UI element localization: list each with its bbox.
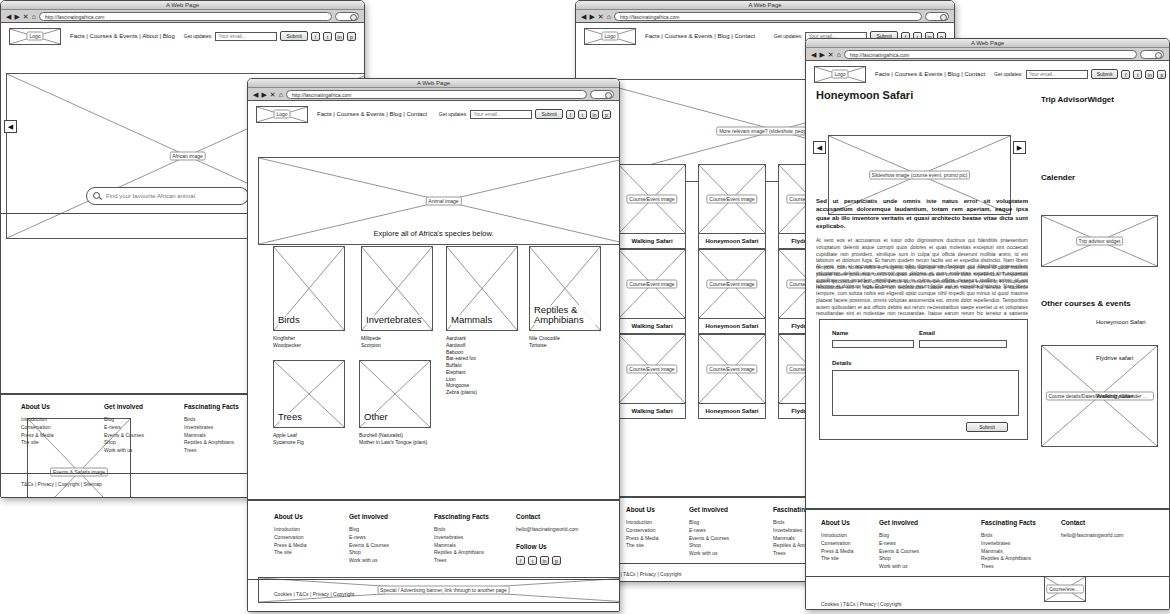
list-item[interactable]: Shop [689,542,767,550]
twitter-icon[interactable]: t [1133,70,1142,79]
footer-divider [248,499,619,501]
footer-involved-column: Get involved BlogE-newsEvents & CoursesS… [349,513,427,565]
footer-column-title: Get involved [689,506,767,513]
home-icon[interactable]: ⌂ [607,13,611,20]
species-card-invertebrates[interactable]: Invertebrates MillipedeScorpion [361,246,433,349]
list-item[interactable]: Blog [104,416,182,424]
species-example-list: Apple LeafSycamore Fig [273,432,345,446]
ad-banner[interactable]: Special / Advertising banner, link throu… [258,577,619,603]
forward-icon[interactable]: ▶ [819,51,824,58]
browser-toolbar: ◀ ▶ ✕ ⌂ http://fascinatingafrica.com [806,48,1169,61]
footer-column-title: Fascinating Facts [981,519,1059,526]
events-image-label: Events & Safaris image [50,468,108,477]
species-card-label: Trees [278,412,302,422]
site-logo[interactable]: Logo [814,66,866,83]
list-item[interactable]: Mammals [981,548,1059,556]
other-course-link[interactable]: Walking safari [1096,393,1133,399]
slideshow-image-label: Slideshow image (course event, promo pic… [869,171,971,180]
footer-about-column: About Us IntroductionConservationPress &… [21,403,99,447]
footer-involved-column: Get involved BlogE-newsEvents & CoursesS… [104,403,182,455]
facebook-icon[interactable]: f [311,32,320,41]
course-body-paragraph: At vero eos et accusamus et iusto odio d… [816,263,1028,315]
twitter-icon[interactable]: t [578,110,587,119]
list-item[interactable]: Woodpecker [273,342,345,349]
linkedin-icon[interactable]: in [335,32,344,41]
legal-divider [806,576,1169,577]
url-bar[interactable]: http://fascinatingafrica.com [286,90,587,99]
species-example-list: Nile CrocodileTortoise [529,335,601,349]
species-card-label: Other [364,412,388,422]
footer-contact-column: Contact hello@fascinatingworld.com Follo… [516,513,611,565]
species-example-list: MillipedeScorpion [361,335,433,349]
site-header: Logo Facts | Courses & Events | Blog | C… [806,61,1169,87]
back-icon[interactable]: ◀ [253,91,258,98]
course-card-honeymoon[interactable]: Course/Event image Honeymoon Safari [698,334,766,419]
contact-email[interactable]: hello@fascinatingworld.com [1061,532,1161,540]
list-item[interactable]: Introduction [274,526,352,534]
main-nav[interactable]: Facts | Courses & Events | About | Blog [70,33,175,39]
home-icon[interactable]: ⌂ [279,91,283,98]
pinterest-icon[interactable]: p [347,32,356,41]
footer-column-title: Fascinating Facts [434,513,512,520]
url-bar[interactable]: http://fascinatingafrica.com [844,50,1137,59]
list-item[interactable]: E-news [349,534,427,542]
linkedin-icon[interactable]: in [590,110,599,119]
footer-column-title: About Us [274,513,352,520]
course-card-title: Walking Safari [618,318,686,334]
newsletter-signup: Get updates: Submit f t in p [994,69,1166,79]
list-item[interactable]: E-news [104,424,182,432]
footer-link-list: BirdsInvertebratesMammalsReptiles & Amph… [434,526,512,565]
logo-label: Logo [831,70,848,79]
tripadvisor-heading: Trip AdvisorWidget [1041,95,1114,104]
back-icon[interactable]: ◀ [811,51,816,58]
home-icon[interactable]: ⌂ [32,13,36,20]
legal-links[interactable]: Cookies | T&Cs | Privacy | Copyright [821,601,902,607]
name-field[interactable] [832,340,914,348]
facebook-icon[interactable]: f [516,556,525,565]
list-item[interactable]: Aardwolf [446,342,518,349]
footer-column-title: Contact [516,513,611,520]
species-card-other[interactable]: Other Burchell (Naturalist)Mother in Law… [359,360,431,446]
list-item[interactable]: Mother in Law's Tongue (plant) [359,439,431,446]
list-item[interactable]: Shop [349,549,427,557]
forward-icon[interactable]: ▶ [589,13,594,20]
get-updates-label: Get updates: [184,33,213,39]
main-nav[interactable]: Facts | Courses & Events | Blog | Contac… [875,71,985,77]
list-item[interactable]: Trees [981,563,1059,571]
footer-link-list: BlogE-newsEvents & CoursesShopWork with … [879,532,957,571]
species-card-mammals[interactable]: Mammals AardvarkAardwolfBaboonBat-eared … [446,246,518,396]
course-card-title: Honeymoon Safari [698,403,766,419]
course-image-label: Course/Event image [626,280,677,289]
name-field-label: Name [832,330,848,336]
list-item[interactable]: Reptiles & Amphibians [981,555,1059,563]
legal-divider [248,579,619,580]
list-item[interactable]: Conservation [274,534,352,542]
list-item[interactable]: Events & Courses [689,535,767,543]
list-item[interactable]: Blog [879,532,957,540]
linkedin-icon[interactable]: in [540,556,549,565]
back-icon[interactable]: ◀ [581,13,586,20]
tripadvisor-widget-placeholder: Trip advisor widget [1041,215,1158,267]
list-item[interactable]: The site [274,549,352,557]
browser-search-icon[interactable] [590,90,614,99]
list-item[interactable]: Kingfisher [273,335,345,342]
list-item[interactable]: Events & Courses [349,542,427,550]
course-card-title: Walking Safari [618,403,686,419]
ad-banner-label: Special / Advertising banner, link throu… [377,586,510,595]
email-signup-input[interactable] [1026,70,1088,79]
species-card-label: Mammals [451,315,492,325]
twitter-icon[interactable]: t [528,556,537,565]
email-signup-input[interactable] [215,32,277,41]
page-content: Logo Facts | Courses & Events | Blog | C… [806,61,1169,609]
window-titlebar[interactable]: A Web Page [806,39,1169,48]
browser-toolbar: ◀ ▶ ✕ ⌂ http://fascinatingafrica.com [248,88,619,101]
list-item[interactable]: Press & Media [21,432,99,440]
course-card-walking[interactable]: Course/Event image Walking Safari [618,249,686,334]
window-titlebar[interactable]: A Web Page [576,1,954,10]
site-logo[interactable]: Logo [9,28,61,45]
list-item[interactable]: Apple Leaf [273,432,345,439]
close-icon[interactable]: ✕ [828,51,834,58]
footer-column-title: Contact [1061,519,1161,526]
url-bar[interactable]: http://fascinatingafrica.com [39,12,332,21]
course-card-title: Honeymoon Safari [698,233,766,249]
newsletter-signup: Get updates: Submit f t in p [184,31,356,41]
follow-us-label: Follow Us [516,543,611,550]
other-course-thumb[interactable]: Course/event image [1044,576,1086,602]
tripadvisor-widget-label: Trip advisor widget [1076,237,1124,246]
animal-search-input[interactable] [106,193,242,199]
legal-links[interactable]: Cookies | T&Cs | Privacy | Copyright [274,591,355,597]
list-item[interactable]: Elephant [446,369,518,376]
slideshow-next-button[interactable]: ▶ [1013,141,1026,154]
browser-search-icon[interactable] [335,12,359,21]
newsletter-signup: Get updates: Submit f t in p [439,109,611,119]
list-item[interactable]: Invertebrates [981,540,1059,548]
contact-email[interactable]: hello@fascinatingworld.com [516,526,611,534]
email-signup-input[interactable] [470,110,532,119]
list-item[interactable]: E-news [879,540,957,548]
site-header: Logo Facts | Courses & Events | About | … [1,23,364,49]
course-card-walking[interactable]: Course/Event image Walking Safari [618,334,686,419]
list-item[interactable]: Introduction [21,416,99,424]
list-item[interactable]: Blog [689,519,767,527]
close-icon[interactable]: ✕ [23,13,29,20]
species-heading: Explore all of Africa's species below. [248,229,619,238]
footer-involved-column: Get involved BlogE-newsEvents & CoursesS… [689,506,767,558]
pinterest-icon[interactable]: p [1157,70,1166,79]
twitter-icon[interactable]: t [323,32,332,41]
list-item[interactable]: Nile Crocodile [529,335,601,342]
email-field-label: Email [919,330,935,336]
footer-column-title: About Us [21,403,99,410]
course-image-label: Course/Event image [626,365,677,374]
home-icon[interactable]: ⌂ [837,51,841,58]
list-item[interactable]: Sycamore Fig [273,439,345,446]
site-logo[interactable]: Logo [256,106,308,123]
window-titlebar[interactable]: A Web Page [1,1,364,10]
get-updates-label: Get updates: [994,71,1023,77]
footer-facts-column: Fascinating Facts BirdsInvertebratesMamm… [434,513,512,565]
main-nav[interactable]: Facts | Courses & Events | Blog | Contac… [645,33,755,39]
calendar-heading: Calender [1041,173,1075,182]
logo-label: Logo [273,110,290,119]
list-item[interactable]: The site [21,439,99,447]
other-course-link[interactable]: Flydrive safari [1096,355,1133,361]
footer-involved-column: Get involved BlogE-newsEvents & CoursesS… [879,519,957,571]
list-item[interactable]: Work with us [879,563,957,571]
list-item[interactable]: Scorpion [361,342,433,349]
search-icon [93,192,101,200]
species-card-birds[interactable]: Birds KingfisherWoodpecker [273,246,345,349]
list-item[interactable]: Zebra (plains) [446,389,518,396]
browser-window-course-detail: A Web Page ◀ ▶ ✕ ⌂ http://fascinatingafr… [805,38,1170,610]
hero-image-label: Animal image [425,197,461,206]
course-card-walking[interactable]: Course/Event image Walking Safari [618,164,686,249]
window-titlebar[interactable]: A Web Page [248,79,619,88]
list-item[interactable]: Shop [879,555,957,563]
list-item[interactable]: Buffalo [446,362,518,369]
details-field[interactable] [832,370,1019,416]
list-item[interactable]: Work with us [104,447,182,455]
list-item[interactable]: Lion [446,376,518,383]
species-card-label: Reptiles & Amphibians [534,305,600,325]
other-course-link[interactable]: Honeymoon Safari [1096,319,1146,325]
list-item[interactable]: Press & Media [274,542,352,550]
get-updates-label: Get updates: [774,33,803,39]
site-logo[interactable]: Logo [584,28,636,45]
footer-divider [806,508,1169,510]
footer-column-title: Get involved [104,403,182,410]
list-item[interactable]: Trees [434,557,512,565]
course-image-label: Course/Event image [706,195,757,204]
logo-label: Logo [601,32,618,41]
footer-link-list: BlogE-newsEvents & CoursesShopWork with … [689,519,767,558]
form-submit-button[interactable]: Submit [966,422,1008,432]
email-field[interactable] [919,340,1007,348]
submit-button[interactable]: Submit [280,31,308,41]
submit-button[interactable]: Submit [535,109,563,119]
course-intro-text: Sed ut perspiciatis unde omnis iste natu… [816,197,1028,231]
species-card-reptiles[interactable]: Reptiles & Amphibians Nile CrocodileTort… [529,246,601,349]
list-item[interactable]: Events & Courses [104,432,182,440]
url-bar[interactable]: http://fascinatingafrica.com [614,12,922,21]
list-item[interactable]: Millipede [361,335,433,342]
footer-contact-column: Contact hello@fascinatingworld.com [1061,519,1161,540]
species-card-label: Invertebrates [366,315,421,325]
list-item[interactable]: Tortoise [529,342,601,349]
legal-links[interactable]: T&Cs | Privacy | Copyright | Sitemap [21,481,102,487]
browser-search-icon[interactable] [925,12,949,21]
footer-column-title: Get involved [349,513,427,520]
species-example-list: KingfisherWoodpecker [273,335,345,349]
list-item[interactable]: Birds [434,526,512,534]
submit-button[interactable]: Submit [1091,69,1119,79]
get-updates-label: Get updates: [439,111,468,117]
course-image-label: Course/Event image [706,280,757,289]
list-item[interactable]: Conservation [21,424,99,432]
footer-about-column: About Us IntroductionConservationPress &… [274,513,352,557]
browser-toolbar: ◀ ▶ ✕ ⌂ http://fascinatingafrica.com [576,10,954,23]
back-icon[interactable]: ◀ [6,13,11,20]
site-header: Logo Facts | Courses & Events | Blog | C… [248,101,619,127]
list-item[interactable]: Aardvark [446,335,518,342]
main-nav[interactable]: Facts | Courses & Events | Blog | Contac… [317,111,427,117]
list-item[interactable]: Mongoose [446,382,518,389]
list-item[interactable]: Baboon [446,349,518,356]
list-item[interactable]: Burchell (Naturalist) [359,432,431,439]
hero-image-label: African image [169,152,206,161]
list-item[interactable]: Bat-eared fox [446,355,518,362]
follow-us-icons: f t in p [516,556,611,565]
forward-icon[interactable]: ▶ [14,13,19,20]
footer-link-list: BirdsInvertebratesMammalsReptiles & Amph… [981,532,1059,571]
slideshow-prev-button[interactable]: ◀ [813,141,826,154]
logo-label: Logo [26,32,43,41]
list-item[interactable]: Shop [104,439,182,447]
list-item[interactable]: Blog [349,526,427,534]
species-example-list: AardvarkAardwolfBaboonBat-eared foxBuffa… [446,335,518,396]
browser-search-icon[interactable] [1140,50,1164,59]
close-icon[interactable]: ✕ [270,91,276,98]
enquiry-form: Name Email Details Submit [819,319,1028,440]
details-field-label: Details [832,360,852,366]
course-card-title: Walking Safari [618,233,686,249]
slideshow-prev-button[interactable]: ◀ [4,120,17,133]
forward-icon[interactable]: ▶ [261,91,266,98]
course-card-title: Honeymoon Safari [698,318,766,334]
list-item[interactable]: Events & Courses [879,548,957,556]
footer-facts-column: Fascinating Facts BirdsInvertebratesMamm… [981,519,1059,571]
course-image-label: Course/Event image [706,365,757,374]
footer-link-list: IntroductionConservationPress & MediaThe… [21,416,99,447]
facebook-icon[interactable]: f [1121,70,1130,79]
species-card-trees[interactable]: Trees Apple LeafSycamore Fig [273,360,345,446]
facebook-icon[interactable]: f [566,110,575,119]
footer-link-list: BlogE-newsEvents & CoursesShopWork with … [349,526,427,565]
pinterest-icon[interactable]: p [552,556,561,565]
course-card-honeymoon[interactable]: Course/Event image Honeymoon Safari [698,164,766,249]
pinterest-icon[interactable]: p [602,110,611,119]
footer-link-list: BlogE-newsEvents & CoursesShopWork with … [104,416,182,455]
browser-toolbar: ◀ ▶ ✕ ⌂ http://fascinatingafrica.com [1,10,364,23]
list-item[interactable]: Work with us [349,557,427,565]
footer-link-list: IntroductionConservationPress & MediaThe… [274,526,352,557]
animal-search-bar [86,187,249,205]
page-content: Logo Facts | Courses & Events | Blog | C… [248,101,619,611]
close-icon[interactable]: ✕ [598,13,604,20]
linkedin-icon[interactable]: in [1145,70,1154,79]
course-thumb-label: Course/event image [1046,585,1084,594]
list-item[interactable]: Birds [981,532,1059,540]
list-item[interactable]: Mammals [434,542,512,550]
species-card-label: Birds [278,315,300,325]
list-item[interactable]: Invertebrates [434,534,512,542]
page-title: Honeymoon Safari [816,89,913,101]
list-item[interactable]: Reptiles & Amphibians [434,549,512,557]
species-example-list: Burchell (Naturalist)Mother in Law's Ton… [359,432,431,446]
list-item[interactable]: Work with us [689,550,767,558]
course-image-label: Course/Event image [626,195,677,204]
course-card-honeymoon[interactable]: Course/Event image Honeymoon Safari [698,249,766,334]
browser-window-species: A Web Page ◀ ▶ ✕ ⌂ http://fascinatingafr… [247,78,620,612]
list-item[interactable]: E-news [689,527,767,535]
footer-column-title: Get involved [879,519,957,526]
other-courses-heading: Other courses & events [1041,299,1131,308]
